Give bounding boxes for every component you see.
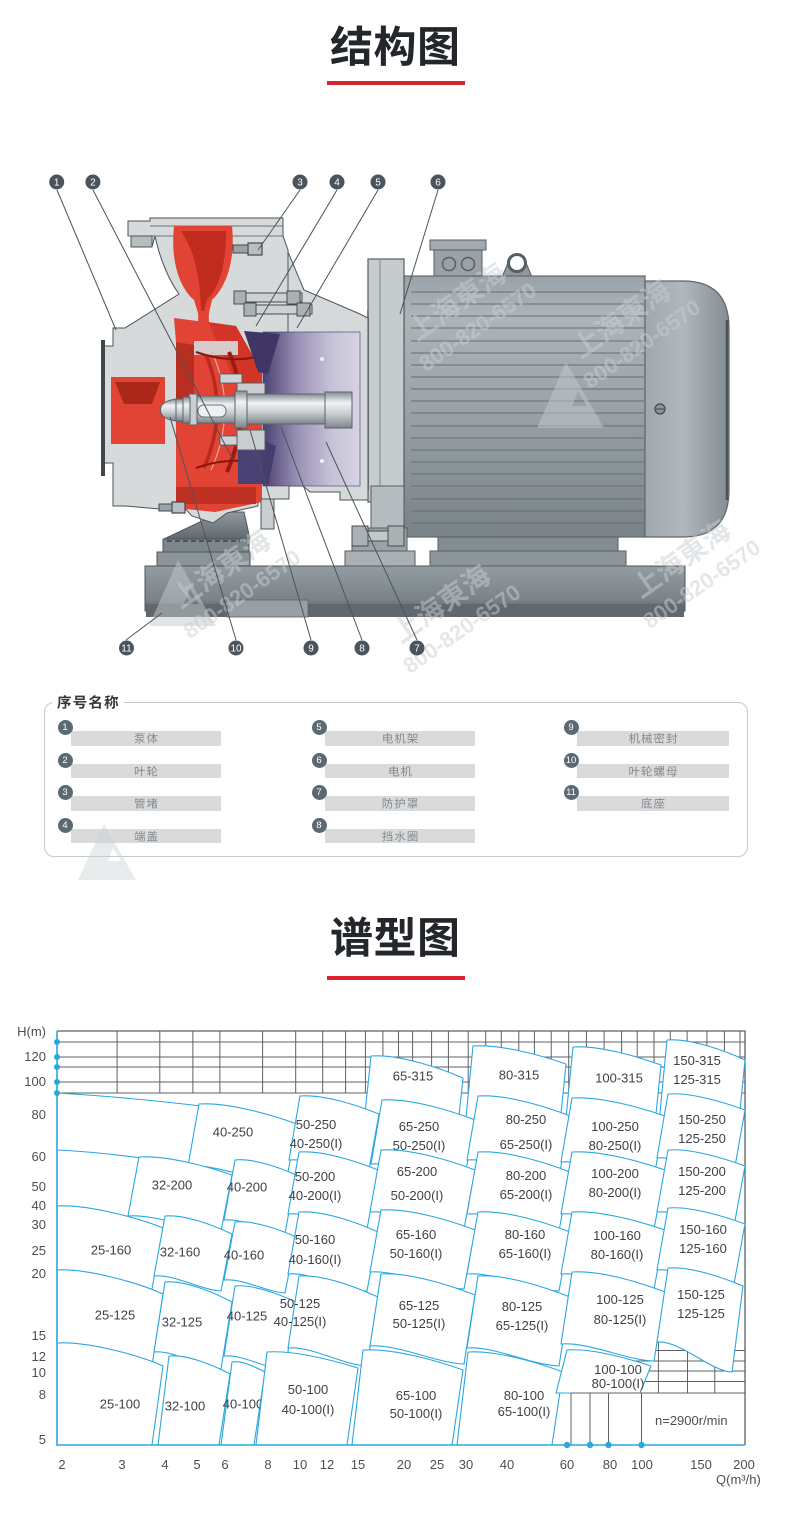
svg-text:65-100: 65-100 — [396, 1388, 436, 1403]
svg-text:125-250: 125-250 — [678, 1131, 726, 1146]
svg-text:50-160(I): 50-160(I) — [390, 1246, 443, 1261]
svg-text:50: 50 — [32, 1179, 46, 1194]
svg-text:25-160: 25-160 — [91, 1243, 131, 1258]
svg-text:65-100(I): 65-100(I) — [498, 1404, 551, 1419]
svg-text:20: 20 — [32, 1266, 46, 1281]
svg-text:80-250: 80-250 — [506, 1112, 546, 1127]
svg-text:200: 200 — [733, 1457, 755, 1472]
svg-text:32-200: 32-200 — [152, 1178, 192, 1193]
svg-text:5: 5 — [193, 1457, 200, 1472]
svg-text:1: 1 — [54, 178, 60, 189]
svg-text:120: 120 — [24, 1049, 46, 1064]
svg-text:30: 30 — [32, 1217, 46, 1232]
svg-text:15: 15 — [351, 1457, 365, 1472]
svg-text:40-160(I): 40-160(I) — [289, 1252, 342, 1267]
svg-text:150-315: 150-315 — [673, 1053, 721, 1068]
svg-text:40: 40 — [500, 1457, 514, 1472]
svg-text:150-160: 150-160 — [679, 1222, 727, 1237]
svg-text:60: 60 — [32, 1149, 46, 1164]
svg-text:40-250(I): 40-250(I) — [290, 1136, 343, 1151]
svg-text:10: 10 — [293, 1457, 307, 1472]
svg-text:80-250(I): 80-250(I) — [589, 1138, 642, 1153]
svg-text:80-200(I): 80-200(I) — [589, 1185, 642, 1200]
svg-text:Q(m³/h): Q(m³/h) — [716, 1472, 761, 1487]
svg-text:50-200: 50-200 — [295, 1169, 335, 1184]
svg-text:40-125(I): 40-125(I) — [274, 1314, 327, 1329]
svg-text:5: 5 — [39, 1432, 46, 1447]
svg-text:25: 25 — [32, 1243, 46, 1258]
svg-text:50-100(I): 50-100(I) — [390, 1406, 443, 1421]
svg-text:40-200: 40-200 — [227, 1180, 267, 1195]
svg-text:125-125: 125-125 — [677, 1306, 725, 1321]
svg-text:100: 100 — [24, 1074, 46, 1089]
svg-text:125-200: 125-200 — [678, 1183, 726, 1198]
svg-text:50-125: 50-125 — [280, 1296, 320, 1311]
svg-text:50-125(I): 50-125(I) — [393, 1316, 446, 1331]
svg-text:50-250: 50-250 — [296, 1117, 336, 1132]
svg-text:11: 11 — [121, 644, 132, 655]
svg-text:100-125: 100-125 — [596, 1292, 644, 1307]
svg-text:n=2900r/min: n=2900r/min — [655, 1413, 728, 1428]
svg-text:25: 25 — [430, 1457, 444, 1472]
svg-text:80-100(I): 80-100(I) — [592, 1376, 645, 1391]
svg-text:100-160: 100-160 — [593, 1228, 641, 1243]
svg-text:3: 3 — [297, 178, 303, 189]
svg-text:150-125: 150-125 — [677, 1287, 725, 1302]
svg-text:40-125: 40-125 — [227, 1309, 267, 1324]
svg-text:80: 80 — [603, 1457, 617, 1472]
svg-text:25-100: 25-100 — [100, 1397, 140, 1412]
svg-text:12: 12 — [320, 1457, 334, 1472]
svg-text:40-160: 40-160 — [224, 1248, 264, 1263]
svg-text:9: 9 — [308, 644, 314, 655]
svg-text:80: 80 — [32, 1107, 46, 1122]
svg-text:65-125(I): 65-125(I) — [496, 1318, 549, 1333]
svg-text:40-100: 40-100 — [223, 1397, 263, 1412]
svg-text:50-200(I): 50-200(I) — [391, 1188, 444, 1203]
svg-text:4: 4 — [334, 178, 340, 189]
svg-text:32-160: 32-160 — [160, 1245, 200, 1260]
svg-text:6: 6 — [435, 178, 441, 189]
svg-text:7: 7 — [414, 644, 420, 655]
svg-text:H(m): H(m) — [17, 1024, 46, 1039]
svg-text:32-100: 32-100 — [165, 1399, 205, 1414]
svg-text:80-100: 80-100 — [504, 1388, 544, 1403]
svg-text:80-125: 80-125 — [502, 1299, 542, 1314]
svg-text:80-160: 80-160 — [505, 1227, 545, 1242]
svg-text:3: 3 — [118, 1457, 125, 1472]
svg-text:150-250: 150-250 — [678, 1112, 726, 1127]
svg-text:125-160: 125-160 — [679, 1241, 727, 1256]
svg-text:60: 60 — [560, 1457, 574, 1472]
svg-text:125-315: 125-315 — [673, 1072, 721, 1087]
svg-text:20: 20 — [397, 1457, 411, 1472]
svg-text:150-200: 150-200 — [678, 1164, 726, 1179]
svg-text:80-125(I): 80-125(I) — [594, 1312, 647, 1327]
svg-text:65-315: 65-315 — [393, 1069, 433, 1084]
svg-text:100-200: 100-200 — [591, 1166, 639, 1181]
svg-text:40: 40 — [32, 1198, 46, 1213]
svg-text:6: 6 — [221, 1457, 228, 1472]
svg-text:40-250: 40-250 — [213, 1125, 253, 1140]
svg-text:65-160: 65-160 — [396, 1227, 436, 1242]
svg-text:12: 12 — [32, 1349, 46, 1364]
svg-text:100-250: 100-250 — [591, 1119, 639, 1134]
svg-text:4: 4 — [161, 1457, 168, 1472]
svg-text:50-160: 50-160 — [295, 1232, 335, 1247]
svg-text:40-100(I): 40-100(I) — [282, 1402, 335, 1417]
svg-text:100-315: 100-315 — [595, 1071, 643, 1086]
svg-text:2: 2 — [90, 178, 96, 189]
svg-text:100-100: 100-100 — [594, 1362, 642, 1377]
svg-text:5: 5 — [375, 178, 381, 189]
svg-text:65-250(I): 65-250(I) — [500, 1137, 553, 1152]
svg-text:8: 8 — [264, 1457, 271, 1472]
svg-text:30: 30 — [459, 1457, 473, 1472]
svg-text:65-200(I): 65-200(I) — [500, 1187, 553, 1202]
svg-text:80-160(I): 80-160(I) — [591, 1247, 644, 1262]
svg-text:65-160(I): 65-160(I) — [499, 1246, 552, 1261]
svg-text:80-200: 80-200 — [506, 1168, 546, 1183]
svg-text:65-250: 65-250 — [399, 1119, 439, 1134]
svg-text:25-125: 25-125 — [95, 1308, 135, 1323]
svg-text:150: 150 — [690, 1457, 712, 1472]
svg-text:8: 8 — [39, 1387, 46, 1402]
svg-text:65-125: 65-125 — [399, 1298, 439, 1313]
svg-text:32-125: 32-125 — [162, 1315, 202, 1330]
svg-text:100: 100 — [631, 1457, 653, 1472]
svg-text:65-200: 65-200 — [397, 1164, 437, 1179]
svg-text:10: 10 — [230, 644, 242, 655]
svg-text:8: 8 — [359, 644, 365, 655]
svg-text:15: 15 — [32, 1328, 46, 1343]
svg-text:50-100: 50-100 — [288, 1382, 328, 1397]
svg-text:10: 10 — [32, 1365, 46, 1380]
svg-text:2: 2 — [58, 1457, 65, 1472]
svg-text:80-315: 80-315 — [499, 1068, 539, 1083]
svg-text:40-200(I): 40-200(I) — [289, 1188, 342, 1203]
